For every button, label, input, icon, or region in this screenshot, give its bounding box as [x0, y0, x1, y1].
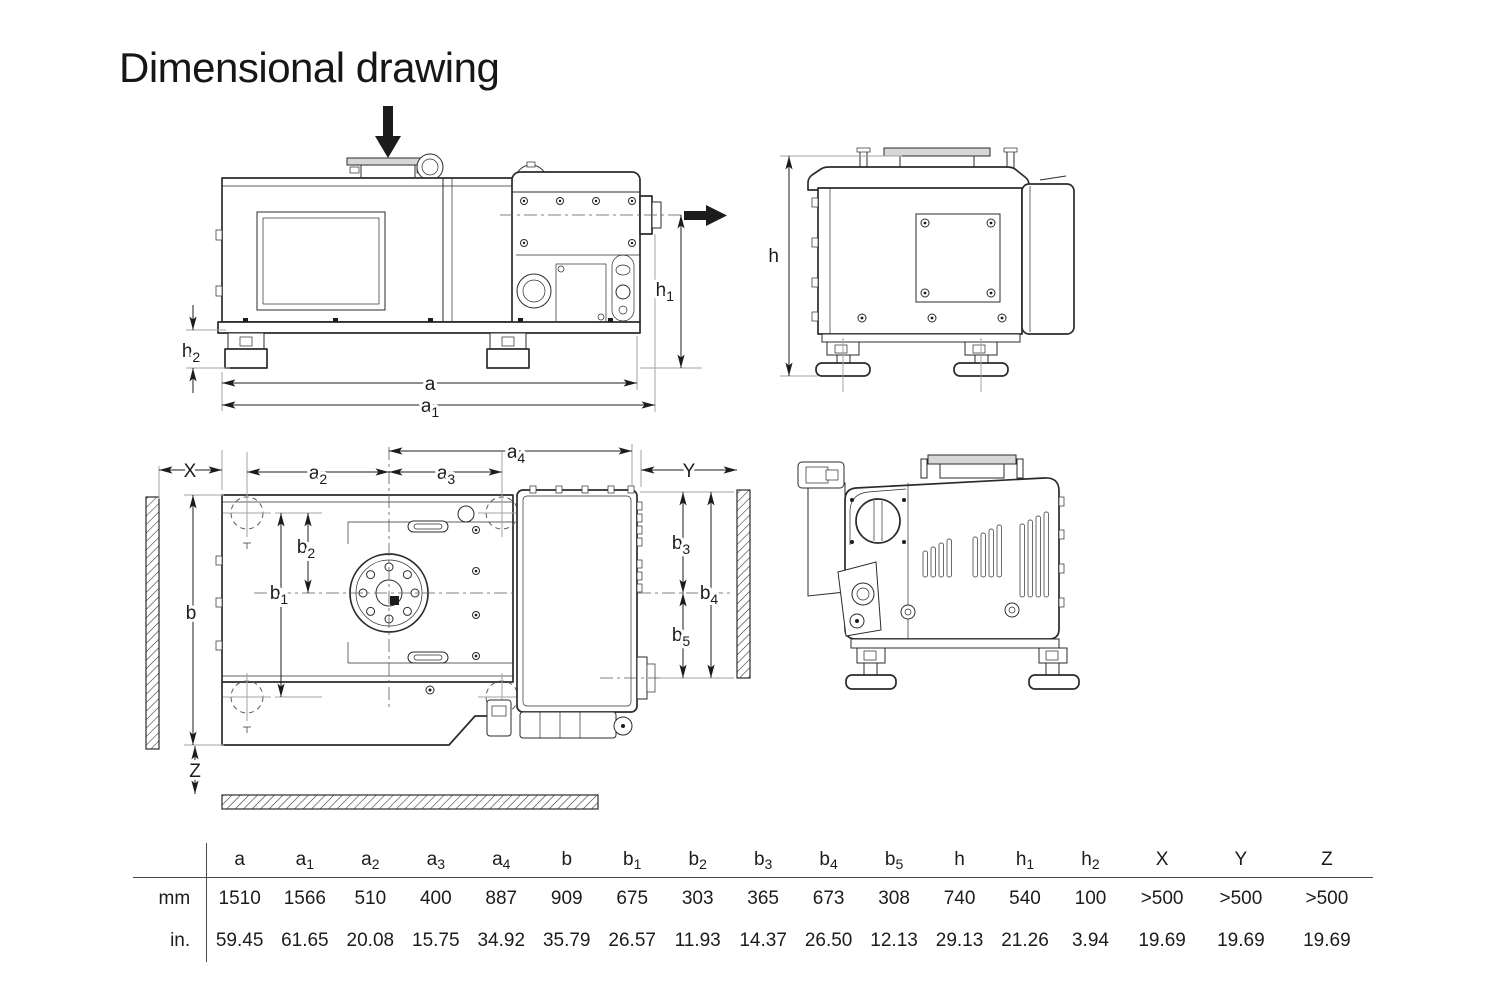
- outlet-flow-arrow: [684, 205, 727, 226]
- dim-h1: h1: [640, 215, 702, 368]
- dim-label-b4: b4: [700, 583, 719, 607]
- dim-label-a2: a2: [309, 463, 328, 487]
- col-header-b: b: [534, 843, 599, 878]
- value-in-Y: 19.69: [1201, 920, 1281, 962]
- hatch-wall-bottom: [222, 795, 598, 809]
- front-right-box: [1022, 176, 1074, 334]
- value-mm-a3: 400: [403, 878, 468, 921]
- front-top-flange: [857, 148, 1017, 168]
- dim-label-b: b: [186, 603, 197, 624]
- dim-label-Y: Y: [683, 461, 696, 482]
- col-header-Y: Y: [1201, 843, 1281, 878]
- lifting-ring: [417, 154, 443, 180]
- col-header-a3: a3: [403, 843, 468, 878]
- value-mm-h2: 100: [1058, 878, 1123, 921]
- dim-label-b3: b3: [672, 533, 691, 557]
- hatch-wall-right: [737, 490, 750, 678]
- col-header-h2: h2: [1058, 843, 1123, 878]
- dim-b4: b4: [660, 492, 734, 678]
- col-header-b3: b3: [730, 843, 795, 878]
- value-mm-h: 740: [927, 878, 992, 921]
- value-mm-b: 909: [534, 878, 599, 921]
- inlet-flow-arrow: [375, 106, 401, 158]
- view-top: X a2 a3 a4 Y: [146, 442, 750, 809]
- col-header-Z: Z: [1281, 843, 1373, 878]
- value-in-b5: 12.13: [861, 920, 926, 962]
- dim-b5: b5: [672, 593, 691, 678]
- value-in-X: 19.69: [1123, 920, 1201, 962]
- value-mm-a1: 1566: [272, 878, 337, 921]
- hatch-wall-left: [146, 497, 159, 749]
- dim-Z: Z: [189, 746, 201, 794]
- dim-label-h1: h1: [656, 280, 675, 304]
- view-front: h: [768, 148, 1074, 392]
- keyway-notch: [390, 596, 399, 605]
- dim-label-a1: a1: [421, 396, 440, 420]
- value-in-a4: 34.92: [469, 920, 534, 962]
- dim-label-a3: a3: [437, 463, 456, 487]
- value-in-b4: 26.50: [796, 920, 861, 962]
- col-header-a1: a1: [272, 843, 337, 878]
- value-in-b3: 14.37: [730, 920, 795, 962]
- table-row-in: in. 59.45 61.65 20.08 15.75 34.92 35.79 …: [133, 920, 1373, 962]
- col-header-a2: a2: [338, 843, 403, 878]
- value-in-b: 35.79: [534, 920, 599, 962]
- top-flange-b: [921, 455, 1023, 478]
- datasheet-page: Dimensional drawing: [0, 0, 1502, 1002]
- value-in-a2: 20.08: [338, 920, 403, 962]
- base-and-feet-side: [218, 318, 640, 368]
- dim-label-X: X: [184, 461, 197, 482]
- dim-b: b: [184, 495, 224, 745]
- front-body: [812, 188, 1022, 334]
- dim-label-Z: Z: [189, 761, 201, 782]
- front-base-and-feet: [816, 334, 1020, 392]
- row-label-in: in.: [133, 920, 207, 962]
- value-in-Z: 19.69: [1281, 920, 1373, 962]
- value-in-h: 29.13: [927, 920, 992, 962]
- front-top-cover: [808, 167, 1029, 190]
- dim-a4: a4: [389, 442, 632, 487]
- value-mm-a4: 887: [469, 878, 534, 921]
- dimensional-drawing-canvas: h2 a a1 h1: [0, 0, 1502, 840]
- dim-label-a: a: [425, 374, 436, 395]
- value-mm-Y: >500: [1201, 878, 1281, 921]
- value-mm-b5: 308: [861, 878, 926, 921]
- value-in-a1: 61.65: [272, 920, 337, 962]
- value-mm-X: >500: [1123, 878, 1201, 921]
- dim-X: X: [159, 450, 222, 499]
- dimension-table: a a1 a2 a3 a4 b b1 b2 b3 b4 b5 h h1 h2 X…: [133, 843, 1373, 962]
- value-mm-Z: >500: [1281, 878, 1373, 921]
- table-row-mm: mm 1510 1566 510 400 887 909 675 303 365…: [133, 878, 1373, 921]
- value-mm-b2: 303: [665, 878, 730, 921]
- value-in-b2: 11.93: [665, 920, 730, 962]
- dim-Y: Y: [641, 450, 737, 487]
- dim-label-h2: h2: [182, 341, 201, 365]
- col-header-b4: b4: [796, 843, 861, 878]
- col-header-a4: a4: [469, 843, 534, 878]
- view-side-left: h2 a a1 h1: [182, 106, 727, 420]
- table-header-row: a a1 a2 a3 a4 b b1 b2 b3 b4 b5 h h1 h2 X…: [133, 843, 1373, 878]
- value-in-h2: 3.94: [1058, 920, 1123, 962]
- view-side-right: [798, 455, 1079, 689]
- value-mm-a2: 510: [338, 878, 403, 921]
- value-in-b1: 26.57: [599, 920, 664, 962]
- top-port-circle: [458, 506, 474, 522]
- col-header-X: X: [1123, 843, 1201, 878]
- col-header-b1: b1: [599, 843, 664, 878]
- col-header-a: a: [207, 843, 272, 878]
- pump-body-b: [838, 478, 1064, 639]
- exhaust-box-side: [512, 172, 640, 330]
- value-mm-a: 1510: [207, 878, 272, 921]
- dim-label-a4: a4: [507, 442, 526, 466]
- col-header-h1: h1: [992, 843, 1057, 878]
- value-in-a3: 15.75: [403, 920, 468, 962]
- value-in-h1: 21.26: [992, 920, 1057, 962]
- dim-a2: a2: [247, 452, 502, 500]
- row-label-mm: mm: [133, 878, 207, 921]
- oil-sight-port: [517, 274, 551, 308]
- shaft-port-b: [856, 499, 900, 543]
- value-mm-b4: 673: [796, 878, 861, 921]
- col-header-h: h: [927, 843, 992, 878]
- dim-label-b5: b5: [672, 625, 691, 649]
- dim-label-h: h: [768, 246, 779, 267]
- dim-b3: b3: [640, 492, 734, 593]
- value-mm-b3: 365: [730, 878, 795, 921]
- base-and-feet-b: [846, 639, 1079, 689]
- header-spacer: [133, 843, 207, 878]
- value-mm-h1: 540: [992, 878, 1057, 921]
- dim-a3: a3: [389, 463, 502, 487]
- left-inlet-bracket: [798, 462, 845, 596]
- value-in-a: 59.45: [207, 920, 272, 962]
- col-header-b2: b2: [665, 843, 730, 878]
- value-mm-b1: 675: [599, 878, 664, 921]
- col-header-b5: b5: [861, 843, 926, 878]
